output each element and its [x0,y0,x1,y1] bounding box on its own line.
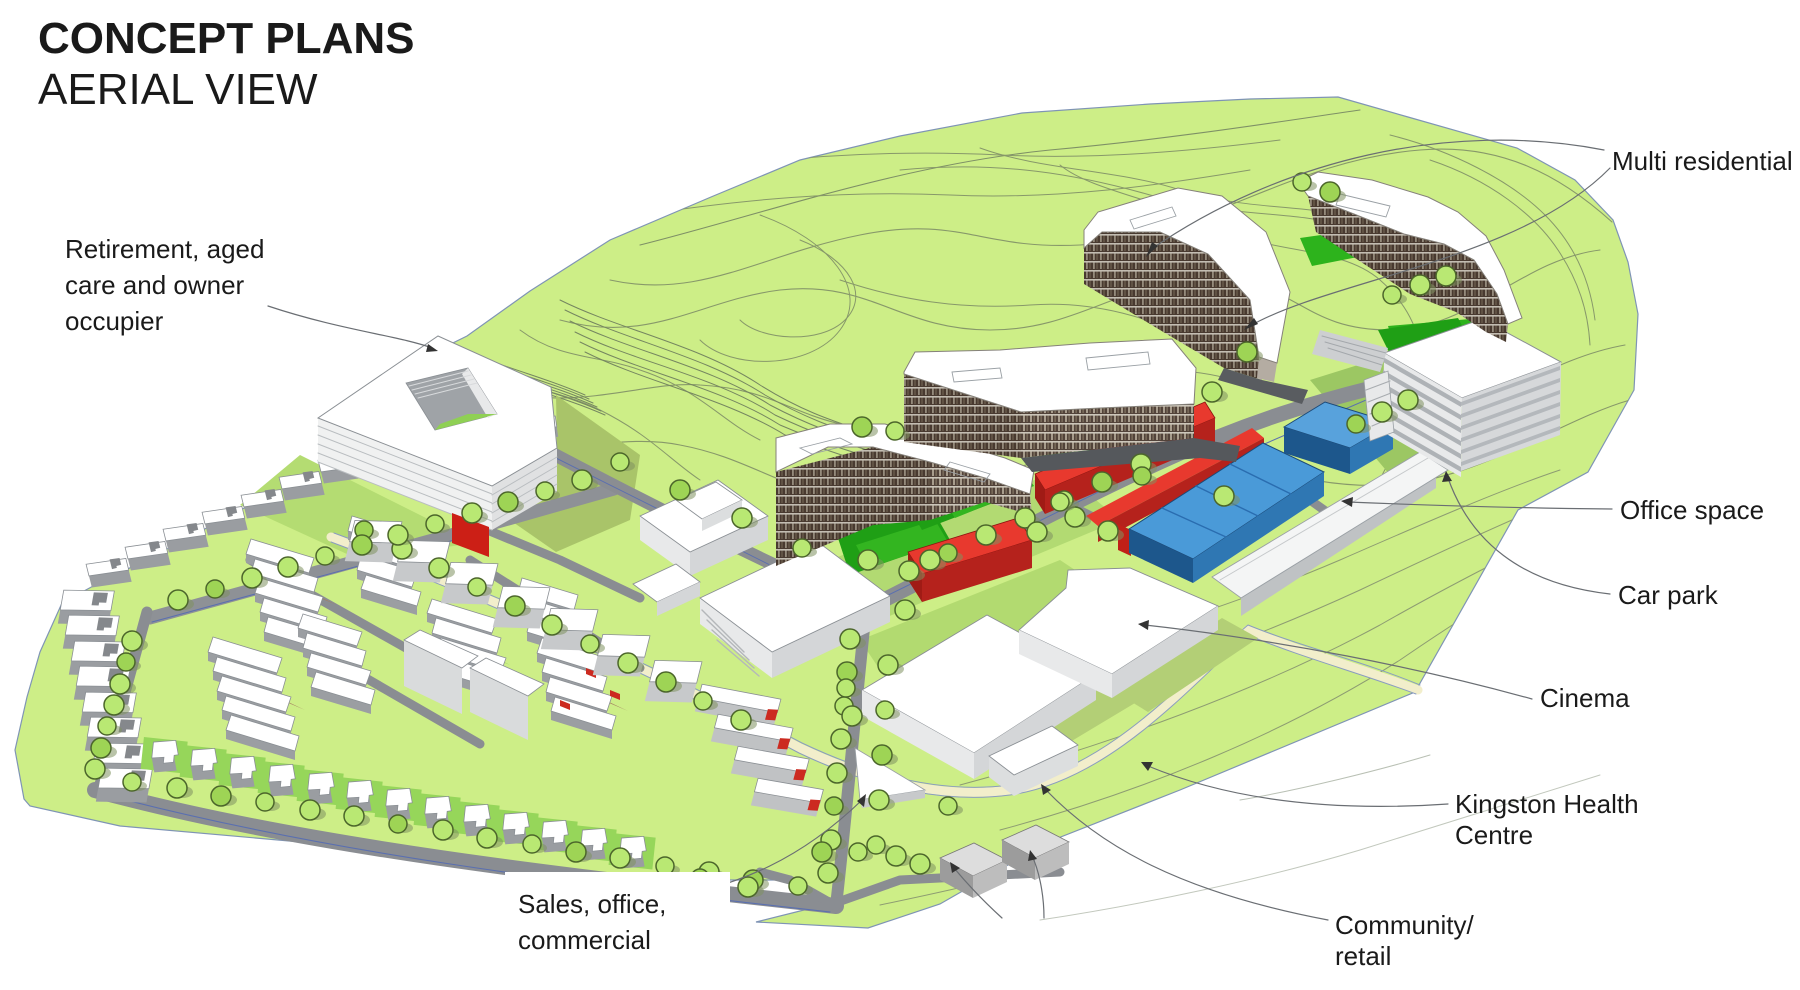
svg-text:commercial: commercial [518,925,651,955]
svg-text:Office space: Office space [1620,495,1764,525]
svg-text:Sales, office,: Sales, office, [518,889,666,919]
svg-text:CONCEPT PLANS: CONCEPT PLANS [38,14,414,63]
svg-text:Car park: Car park [1618,580,1719,610]
svg-text:care and owner: care and owner [65,270,245,300]
svg-text:Kingston Health: Kingston Health [1455,789,1639,819]
svg-text:occupier: occupier [65,306,164,336]
svg-text:Multi residential: Multi residential [1612,146,1793,176]
svg-text:AERIAL VIEW: AERIAL VIEW [38,65,318,114]
svg-text:Cinema: Cinema [1540,683,1630,713]
svg-text:Retirement, aged: Retirement, aged [65,234,264,264]
svg-text:Community/: Community/ [1335,910,1474,940]
svg-text:retail: retail [1335,941,1391,971]
svg-text:Centre: Centre [1455,820,1533,850]
